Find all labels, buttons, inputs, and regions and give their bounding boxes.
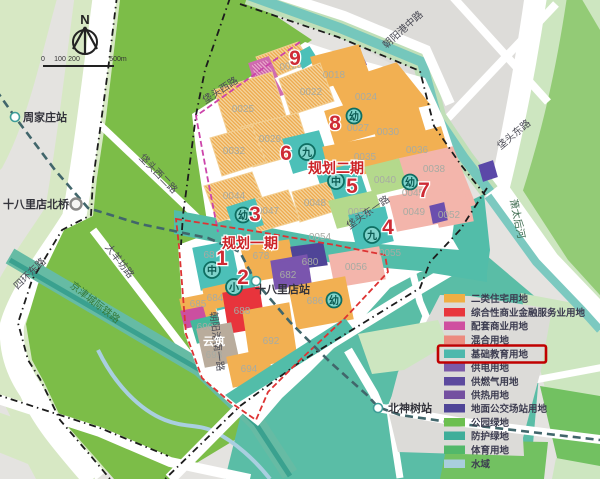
svg-text:北神树站: 北神树站: [388, 401, 432, 415]
svg-text:0044: 0044: [223, 191, 246, 202]
svg-text:0027: 0027: [347, 123, 370, 134]
svg-text:9: 9: [289, 47, 301, 70]
svg-text:100: 100: [54, 56, 66, 63]
svg-text:N: N: [80, 12, 89, 27]
svg-text:694: 694: [241, 364, 258, 375]
svg-text:中: 中: [331, 175, 341, 188]
svg-text:7: 7: [418, 179, 430, 202]
svg-text:682: 682: [280, 270, 297, 281]
svg-text:0029: 0029: [259, 134, 282, 145]
svg-text:6: 6: [280, 142, 292, 165]
svg-text:幼: 幼: [238, 209, 248, 222]
svg-text:0055: 0055: [379, 248, 402, 259]
svg-text:二类住宅用地: 二类住宅用地: [471, 293, 529, 305]
svg-text:0040: 0040: [374, 175, 397, 186]
svg-text:地面公交场站用地: 地面公交场站用地: [471, 403, 548, 415]
svg-text:配套商业用地: 配套商业用地: [471, 321, 529, 333]
svg-text:0036: 0036: [406, 145, 429, 156]
svg-text:500m: 500m: [109, 56, 127, 63]
svg-text:幼: 幼: [405, 176, 415, 189]
svg-text:4: 4: [382, 216, 394, 239]
svg-text:规划二期: 规划二期: [308, 160, 364, 176]
svg-text:688: 688: [234, 306, 251, 317]
svg-text:684: 684: [207, 293, 224, 304]
svg-text:十八里店北桥: 十八里店北桥: [3, 197, 70, 211]
svg-text:九: 九: [366, 229, 377, 242]
svg-text:十八里店站: 十八里店站: [255, 282, 310, 296]
svg-text:0022: 0022: [300, 87, 323, 98]
svg-text:0049: 0049: [403, 207, 426, 218]
svg-text:周家庄站: 周家庄站: [23, 110, 67, 124]
svg-text:680: 680: [302, 257, 319, 268]
svg-text:2: 2: [237, 266, 249, 289]
svg-text:0038: 0038: [423, 164, 446, 175]
svg-text:8: 8: [329, 112, 341, 135]
svg-text:686: 686: [307, 296, 324, 307]
svg-text:供热用地: 供热用地: [470, 390, 510, 402]
svg-text:0056: 0056: [345, 262, 368, 273]
svg-text:692: 692: [263, 336, 280, 347]
svg-text:68: 68: [203, 250, 215, 261]
svg-text:0025: 0025: [232, 104, 255, 115]
svg-text:0018: 0018: [323, 70, 346, 81]
svg-text:体育用地: 体育用地: [471, 445, 510, 457]
svg-text:幼: 幼: [349, 110, 359, 123]
svg-text:规划一期: 规划一期: [222, 235, 278, 251]
svg-text:云筑: 云筑: [203, 334, 225, 348]
svg-text:3: 3: [249, 203, 261, 226]
svg-text:九: 九: [301, 146, 312, 159]
svg-text:0024: 0024: [355, 92, 378, 103]
svg-text:0054: 0054: [309, 232, 332, 243]
svg-text:200: 200: [68, 56, 80, 63]
svg-text:防护绿地: 防护绿地: [471, 431, 510, 443]
svg-text:0048: 0048: [304, 198, 327, 209]
svg-text:0030: 0030: [377, 127, 400, 138]
svg-text:0: 0: [41, 56, 45, 63]
svg-text:水域: 水域: [471, 459, 491, 471]
svg-text:5: 5: [346, 175, 358, 198]
svg-text:685: 685: [190, 299, 207, 310]
svg-text:供燃气用地: 供燃气用地: [470, 376, 519, 388]
svg-text:0052: 0052: [438, 210, 461, 221]
svg-text:公园绿地: 公园绿地: [471, 417, 510, 429]
svg-text:0032: 0032: [223, 146, 246, 157]
svg-text:幼: 幼: [329, 294, 339, 307]
svg-text:678: 678: [253, 251, 270, 262]
svg-text:综合性商业金融服务业用地: 综合性商业金融服务业用地: [471, 307, 586, 319]
svg-text:基础教育用地: 基础教育用地: [470, 349, 529, 361]
